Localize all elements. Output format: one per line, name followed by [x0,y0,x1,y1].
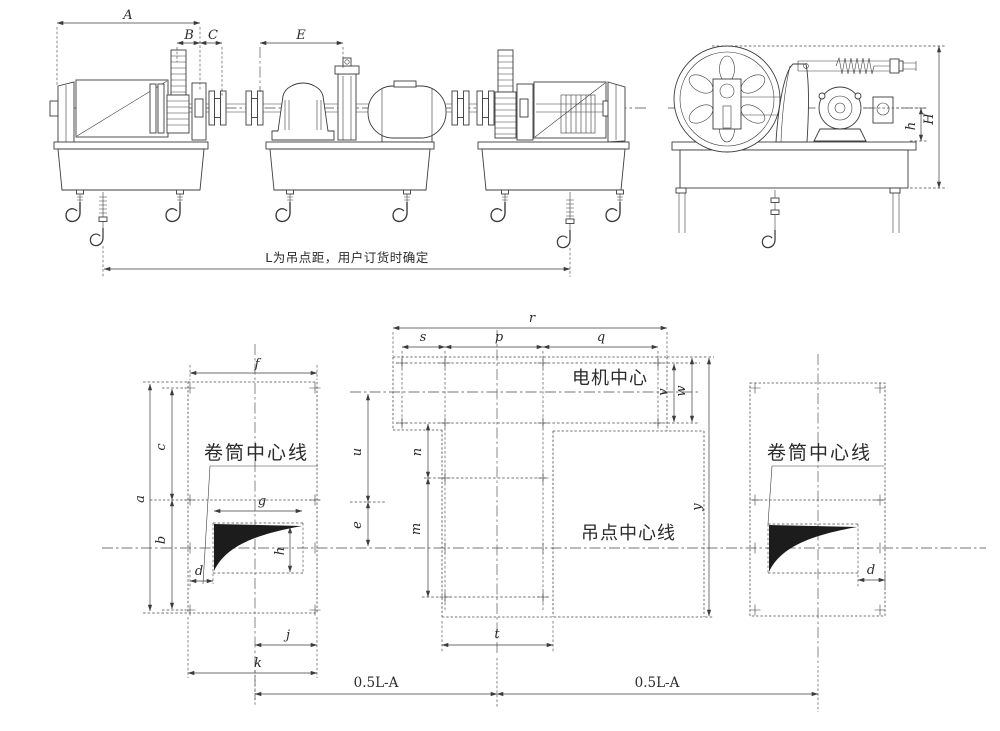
dim-label-t: t [494,627,500,642]
dim-label-k: k [254,656,262,671]
plan-view-center: 电机中心 吊点中心线 r s p q u e n m t v w [350,311,714,656]
plan-left-dimensions: f a c b g h d j k [133,357,317,678]
hook [166,190,183,221]
drum-wedge-mark [214,524,302,571]
plan-right-dimensions: d [858,563,885,590]
coupling [209,91,226,125]
dim-label-q: q [597,330,605,345]
plan-view-right-trolley: 卷筒中心线 d [750,354,886,668]
dim-label-j: j [283,628,290,643]
dim-label-b: b [154,536,169,544]
dim-label-d-right: d [867,563,875,578]
hang-distance-note: L为吊点距，用户订货时确定 [265,250,428,265]
motor-unit [272,58,446,142]
dim-label-E: E [295,28,306,43]
dim-label-c: c [154,443,169,451]
coupling [246,91,263,125]
hang-distance-dimension: L为吊点距，用户订货时确定 [103,246,570,277]
dim-label-y: y [690,503,705,512]
motor-center-label: 电机中心 [572,368,648,389]
dim-label-r: r [529,311,536,326]
hook [276,190,293,221]
dim-label-h-end: h [904,122,919,130]
hook [393,190,410,221]
end-elevation-view: h H [668,46,945,248]
dim-label-B: B [183,28,194,43]
left-drum-unit [50,50,206,146]
dim-label-v: v [656,388,671,396]
dim-label-w: w [674,385,689,396]
hook [606,190,623,221]
hook [491,190,508,221]
plan-center-dimensions: r s p q u e n m t v w y [350,311,714,652]
half-span-dimensions: 0.5L-A 0.5L-A [255,658,818,712]
coupling [477,91,494,125]
end-view-lifting-rod [762,190,779,248]
dim-label-f: f [254,357,262,372]
right-drum-unit [495,50,625,142]
lifting-rod-left [90,192,107,246]
dim-label-p: p [495,330,504,345]
lifting-rod-right [557,192,574,248]
front-elevation-view: A B C E L为吊点距，用户订货时确定 [50,8,648,277]
dim-label-H-end: H [922,113,937,126]
dim-label-s: s [420,330,427,345]
coupling [452,91,469,125]
dim-label-C: C [208,28,218,43]
drum-wedge-mark [769,525,857,572]
dim-label-u: u [350,448,365,456]
dim-label-m: m [409,523,424,535]
dim-label-n: n [410,448,425,456]
drum-wheel [674,46,780,152]
dim-label-h-wedge: h [273,547,288,555]
dim-label-e: e [350,521,365,529]
drum-centerline-label-left: 卷筒中心线 [204,442,309,464]
plan-view-left-trolley: 卷筒中心线 f a c b g h d j k [133,344,322,700]
engineering-drawing: A B C E L为吊点距，用户订货时确定 [0,0,1000,731]
drum-centerline-label-right: 卷筒中心线 [767,442,872,464]
hook [66,190,83,221]
dim-label-g: g [258,494,266,509]
base-frames [54,142,629,221]
hang-point-centerline-label: 吊点中心线 [581,523,676,544]
drawing-sheet: A B C E L为吊点距，用户订货时确定 [0,0,1000,731]
half-span-label-left: 0.5L-A [354,675,399,691]
dim-label-d-left: d [195,564,203,579]
half-span-label-right: 0.5L-A [635,675,680,691]
dim-label-A: A [122,8,132,23]
dim-label-a: a [133,495,148,503]
